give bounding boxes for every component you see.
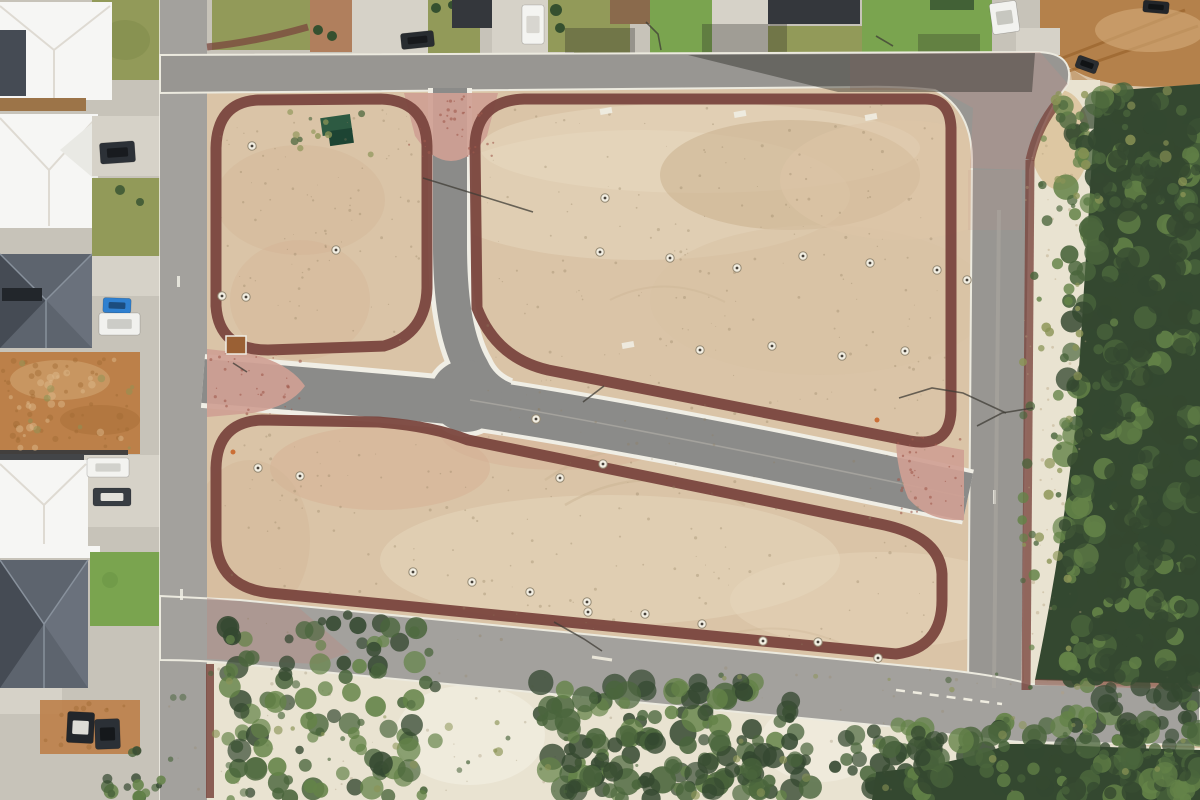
bush [1038, 182, 1043, 187]
utility-marker [583, 598, 591, 606]
sand-speck [35, 370, 42, 377]
sand-speck [754, 258, 757, 261]
bush [1167, 183, 1179, 195]
sand-speck [1040, 545, 1041, 546]
bush [268, 757, 287, 776]
sand-speck [699, 270, 702, 273]
bush [348, 727, 360, 739]
sand-speck [228, 144, 229, 145]
bush [1129, 517, 1141, 529]
sand-speck [516, 760, 517, 761]
sand-speck [266, 623, 267, 624]
sand-speck [894, 365, 896, 367]
sand-speck [917, 159, 918, 160]
house-roof-dark-section [0, 30, 26, 96]
sand-speck [293, 490, 296, 493]
sand-speck [426, 729, 429, 732]
sand-speck [944, 357, 946, 359]
sand-speck [901, 487, 904, 490]
bush [1185, 211, 1194, 220]
utility-lid-center [966, 279, 969, 282]
sand-speck [52, 363, 58, 369]
bush [457, 767, 463, 773]
sand-speck [214, 395, 217, 398]
screenshot [0, 0, 1200, 800]
sand-speck [239, 394, 241, 396]
car-blue [103, 298, 132, 314]
bush [1131, 367, 1153, 389]
bush [337, 656, 352, 671]
bush [1167, 690, 1180, 703]
bush [1176, 105, 1187, 116]
bush [1072, 344, 1079, 351]
sand-speck [422, 156, 423, 157]
sand-speck [539, 605, 542, 608]
sand-speck [283, 395, 286, 398]
utility-lid-center [299, 475, 302, 478]
sand-speck [948, 466, 950, 468]
sand-speck [298, 287, 301, 290]
sand-speck [300, 485, 302, 487]
sand-speck [349, 205, 351, 207]
bush [867, 724, 881, 738]
sand-speck [920, 394, 921, 395]
bush [567, 731, 579, 743]
sand-speck [687, 229, 690, 232]
bush [352, 659, 367, 674]
sand-speck [550, 380, 551, 381]
bush [309, 117, 313, 121]
bush [1169, 243, 1188, 262]
bush [371, 663, 387, 679]
sand-speck [339, 506, 341, 508]
sand-speck [930, 237, 933, 240]
junction-asphalt [430, 360, 502, 432]
bush [743, 678, 747, 682]
sand-speck [761, 144, 764, 147]
bush [666, 759, 680, 773]
sand-speck [915, 451, 917, 453]
sand-speck [239, 276, 240, 277]
sand-speck [358, 590, 361, 593]
sand-speck [550, 235, 552, 237]
sand-speck [1063, 542, 1064, 543]
bush [1162, 678, 1175, 691]
sand-speck [888, 551, 891, 554]
sand-speck [362, 167, 364, 169]
utility-lid-center [604, 197, 607, 200]
sand-speck [342, 760, 344, 762]
sand-speck [561, 356, 562, 357]
bush [1019, 533, 1028, 542]
aged-asphalt-tint [968, 170, 1022, 230]
sand-speck [429, 509, 432, 512]
sand-speck [849, 353, 852, 356]
bush [1051, 605, 1057, 611]
bush [1110, 318, 1118, 326]
sand-speck [1048, 738, 1050, 740]
sand-speck [407, 200, 410, 203]
bush [299, 759, 312, 772]
house-roof-brown [610, 0, 650, 24]
sand-speck [545, 488, 547, 490]
sand-speck [823, 254, 825, 256]
bush [316, 640, 327, 651]
sand-speck [462, 129, 464, 131]
sand-speck [249, 277, 251, 279]
bush [1073, 372, 1082, 381]
bush [1017, 515, 1027, 525]
sand-speck [348, 209, 351, 212]
sand-speck [916, 511, 918, 513]
sand-speck [59, 743, 64, 748]
sand-speck [49, 380, 53, 384]
utility-lid-center [904, 350, 907, 353]
bush [251, 719, 271, 739]
bush [1154, 766, 1160, 772]
bush [1083, 562, 1096, 575]
bush [1057, 468, 1062, 473]
sand-speck [393, 331, 395, 333]
sand-speck [666, 345, 668, 347]
sand-speck [510, 565, 512, 567]
sand-speck [910, 491, 912, 493]
sand-speck [447, 574, 449, 576]
sand-speck [707, 272, 710, 275]
sand-speck [262, 155, 264, 157]
sand-speck [287, 631, 289, 633]
bush [1163, 86, 1172, 95]
bush [1182, 368, 1200, 386]
sand-speck [1079, 611, 1081, 613]
tactile-paver-pad [226, 336, 246, 354]
sand-speck [683, 296, 686, 299]
sand-speck [367, 553, 369, 555]
sand-speck [386, 113, 387, 114]
bush [141, 788, 150, 797]
bush [1019, 411, 1027, 419]
tree-shadow [702, 24, 787, 54]
sand-speck [284, 238, 285, 239]
sand-speck [117, 428, 119, 430]
sand-speck [73, 358, 78, 363]
sand-speck [872, 331, 874, 333]
bush [1080, 122, 1090, 132]
sand-speck [291, 409, 293, 411]
bush [737, 674, 742, 679]
sand-speck [908, 198, 911, 201]
bush [1063, 732, 1068, 737]
sand-speck [382, 119, 385, 122]
bush [126, 388, 133, 395]
sand-speck [618, 507, 620, 509]
sand-speck [447, 108, 450, 111]
sand-speck [546, 380, 547, 381]
bush [1054, 735, 1077, 758]
sand-speck [218, 356, 221, 359]
bush [1125, 135, 1136, 146]
bush [930, 765, 953, 788]
bush [1131, 464, 1148, 481]
bush [995, 672, 998, 675]
bush [365, 696, 386, 717]
sand-speck [45, 419, 49, 423]
bush [278, 667, 292, 681]
bush [1149, 158, 1158, 167]
bush [340, 736, 345, 741]
sand-speck [914, 305, 915, 306]
sand-speck [241, 374, 243, 376]
utility-lid-center [586, 601, 589, 604]
sand-speck [311, 196, 312, 197]
sand-speck [339, 441, 340, 442]
sand-speck [705, 565, 706, 566]
utility-lid-center [221, 295, 224, 298]
bush [1011, 716, 1015, 720]
bush [741, 758, 763, 780]
sand-speck [1027, 373, 1029, 375]
utility-marker [601, 194, 609, 202]
sand-speck [417, 200, 420, 203]
sand-speck [86, 701, 91, 706]
sand-speck [453, 743, 454, 744]
sand-speck [81, 389, 85, 393]
sand-speck [78, 382, 83, 387]
sand-speck [932, 434, 933, 435]
bush [644, 732, 666, 754]
bush [528, 670, 553, 695]
bush [648, 710, 662, 724]
sand-speck [1040, 408, 1042, 410]
sand-speck [711, 323, 712, 324]
sand-speck [1065, 173, 1066, 174]
bush [1116, 247, 1140, 271]
bush [208, 671, 214, 677]
sand-speck [463, 607, 466, 610]
bush [1081, 91, 1089, 99]
sand-speck [909, 451, 912, 454]
sand-speck [89, 402, 93, 406]
bush [698, 734, 709, 745]
sand-speck [104, 438, 106, 440]
bush [1104, 347, 1120, 363]
sand-speck [593, 628, 594, 629]
sand-speck [839, 212, 841, 214]
utility-marker [296, 472, 304, 480]
sand-speck [696, 556, 697, 557]
sand-speck [226, 140, 227, 141]
sand-speck [351, 220, 352, 221]
tree-shadow [918, 34, 980, 54]
sand-speck [1036, 611, 1039, 614]
bush [642, 778, 660, 796]
utility-marker [254, 464, 262, 472]
bush [1027, 763, 1039, 775]
van-white-west-windows [95, 463, 120, 471]
sand-speck [325, 233, 327, 235]
bush [1137, 276, 1158, 297]
sand-speck [1052, 424, 1055, 427]
sand-speck [552, 271, 555, 274]
sand-speck [391, 219, 393, 221]
sand-tint [215, 145, 385, 255]
sand-speck [636, 492, 639, 495]
bush [1117, 273, 1129, 285]
sand-speck [800, 399, 801, 400]
sand-speck [307, 194, 308, 195]
bush [325, 131, 332, 138]
sand-speck [490, 155, 492, 157]
sand-speck [856, 580, 859, 583]
sand-speck [526, 304, 527, 305]
bush [1130, 719, 1135, 724]
utility-marker [768, 342, 776, 350]
sand-speck [690, 528, 692, 530]
sand-speck [1046, 529, 1048, 531]
bush [226, 678, 233, 685]
sand-speck [704, 216, 705, 217]
sand-speck [64, 390, 68, 394]
bush [1040, 135, 1046, 141]
sand-speck [748, 570, 751, 573]
bush [401, 714, 423, 736]
bush [1056, 444, 1062, 450]
sand-speck [329, 592, 332, 595]
sand-speck [216, 388, 217, 389]
sand-speck [917, 399, 919, 401]
bush [738, 739, 743, 744]
sand-speck [567, 211, 569, 213]
sand-speck [556, 553, 558, 555]
van-white-top-windows [526, 16, 539, 33]
bush [392, 743, 399, 750]
bush [1180, 479, 1200, 499]
bush [1162, 738, 1176, 752]
bush [1075, 283, 1079, 287]
sand-speck [1035, 125, 1036, 126]
sand-speck [870, 487, 872, 489]
sand-speck [803, 226, 804, 227]
sand-speck [461, 98, 464, 101]
sand-speck [908, 460, 911, 463]
bush [1174, 600, 1188, 614]
sand-speck [380, 476, 382, 478]
sand-speck [869, 196, 871, 198]
bush [1181, 722, 1198, 739]
car-white-top-right-windows [996, 10, 1014, 26]
sand-speck [840, 709, 842, 711]
sand-speck [657, 228, 660, 231]
sand-speck [924, 487, 927, 490]
sand-speck [395, 256, 397, 258]
sand-speck [884, 542, 886, 544]
sand-speck [636, 207, 638, 209]
sand-speck [262, 391, 265, 394]
sand-speck [785, 204, 787, 206]
bush [33, 426, 41, 434]
sand-speck [168, 705, 170, 707]
bush [356, 637, 368, 649]
bush [19, 360, 25, 366]
sand-speck [728, 585, 729, 586]
bush [1128, 621, 1153, 646]
bush [722, 676, 727, 681]
sand-speck [573, 602, 574, 603]
bush [226, 762, 233, 769]
utility-marker [874, 654, 882, 662]
sand-speck [480, 112, 482, 114]
sand-speck [687, 253, 688, 254]
bush [1094, 152, 1106, 164]
sand-speck [1061, 502, 1064, 505]
sand-speck [708, 297, 709, 298]
sand-speck [908, 366, 911, 369]
sand-speck [703, 418, 706, 421]
sand-speck [283, 585, 286, 588]
driveway [88, 628, 160, 686]
sand-speck [450, 471, 452, 473]
sand-speck [878, 593, 879, 594]
sand-speck [570, 462, 571, 463]
sand-speck [511, 532, 513, 534]
utility-marker [838, 352, 846, 360]
bush [781, 733, 798, 750]
sand-speck [921, 436, 923, 438]
sand-speck [560, 410, 562, 412]
sand-speck [905, 289, 908, 292]
sand-speck [381, 109, 383, 111]
sand-speck [1047, 680, 1049, 682]
sand-speck [88, 381, 96, 389]
bush [493, 748, 497, 752]
utility-lid-center [877, 657, 880, 660]
bush [878, 736, 900, 758]
bush [1071, 723, 1075, 727]
bush [779, 756, 787, 764]
sand-speck [1153, 707, 1156, 710]
sand-speck [908, 326, 909, 327]
bush [380, 617, 400, 637]
sand-speck [33, 363, 39, 369]
utility-marker [799, 252, 807, 260]
sand-speck [796, 199, 798, 201]
utility-marker [814, 638, 822, 646]
bush [1075, 733, 1101, 759]
bush [1180, 738, 1185, 743]
sand-speck [768, 554, 771, 557]
sand-speck [359, 213, 362, 216]
bush [342, 683, 361, 702]
utility-marker [599, 460, 607, 468]
bush [1071, 475, 1081, 485]
bush [133, 779, 144, 790]
bush [777, 700, 799, 722]
sand-speck [612, 618, 615, 621]
sand-speck [486, 324, 489, 327]
bush [1050, 716, 1073, 739]
driveway [1016, 28, 1060, 55]
bush [380, 720, 398, 738]
sand-speck [581, 295, 582, 296]
bush [1017, 774, 1025, 782]
sand-speck [724, 315, 725, 316]
sand-speck [256, 130, 258, 132]
sand-speck [254, 219, 257, 222]
sand-speck [923, 614, 925, 616]
sand-speck [760, 227, 761, 228]
sand-speck [614, 262, 617, 265]
sand-speck [292, 187, 295, 190]
